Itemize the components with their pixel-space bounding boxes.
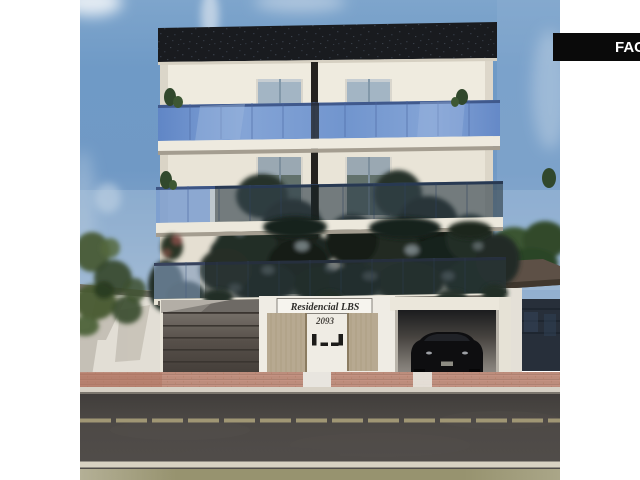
svg-text:FACHADA: FACHADA bbox=[615, 39, 640, 56]
svg-text:2093: 2093 bbox=[315, 316, 335, 326]
svg-text:Residencial LBS: Residencial LBS bbox=[290, 302, 360, 313]
